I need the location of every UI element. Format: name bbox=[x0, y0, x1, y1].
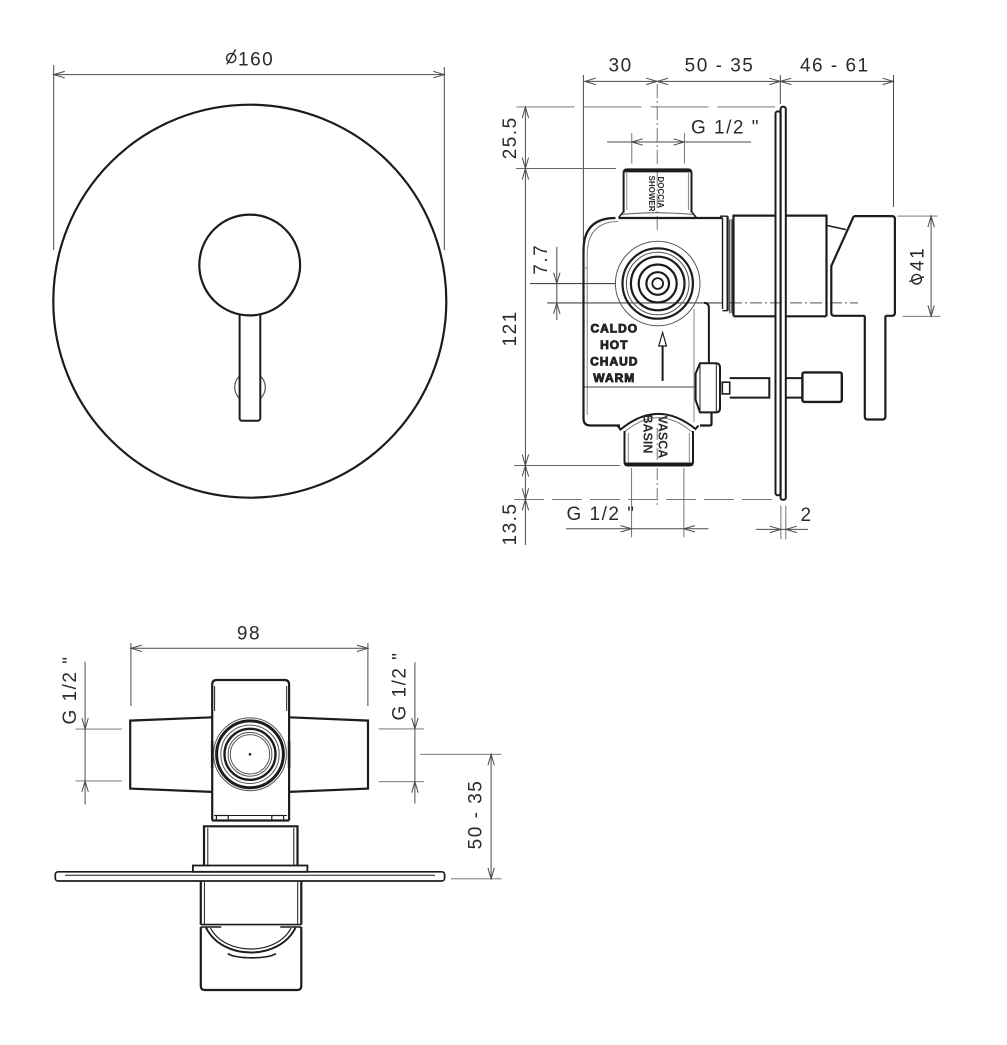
svg-text:2: 2 bbox=[801, 505, 813, 526]
svg-text:46 - 61: 46 - 61 bbox=[800, 56, 870, 77]
svg-text:BASIN: BASIN bbox=[641, 415, 655, 454]
svg-text:G 1/2 ": G 1/2 " bbox=[390, 652, 411, 721]
svg-text:98: 98 bbox=[237, 624, 261, 645]
svg-text:G 1/2 ": G 1/2 " bbox=[567, 504, 636, 525]
svg-text:CALDO: CALDO bbox=[590, 321, 638, 335]
svg-text:41: 41 bbox=[908, 247, 929, 271]
svg-text:SHOWER: SHOWER bbox=[647, 176, 656, 212]
svg-text:121: 121 bbox=[500, 310, 521, 346]
svg-text:CHAUD: CHAUD bbox=[590, 355, 638, 369]
svg-text:HOT: HOT bbox=[600, 338, 628, 352]
svg-text:50 - 35: 50 - 35 bbox=[466, 780, 487, 850]
svg-text:13.5: 13.5 bbox=[500, 503, 521, 546]
svg-text:DOCCIA: DOCCIA bbox=[656, 177, 665, 209]
svg-text:30: 30 bbox=[609, 56, 633, 77]
svg-text:WARM: WARM bbox=[593, 371, 635, 385]
svg-text:160: 160 bbox=[238, 50, 274, 71]
svg-text:25.5: 25.5 bbox=[500, 116, 521, 159]
svg-text:50 - 35: 50 - 35 bbox=[685, 56, 755, 77]
svg-text:7.7: 7.7 bbox=[531, 244, 552, 275]
svg-text:VASCA: VASCA bbox=[656, 416, 670, 459]
svg-text:G 1/2 ": G 1/2 " bbox=[691, 118, 760, 139]
svg-text:G 1/2 ": G 1/2 " bbox=[60, 656, 81, 725]
